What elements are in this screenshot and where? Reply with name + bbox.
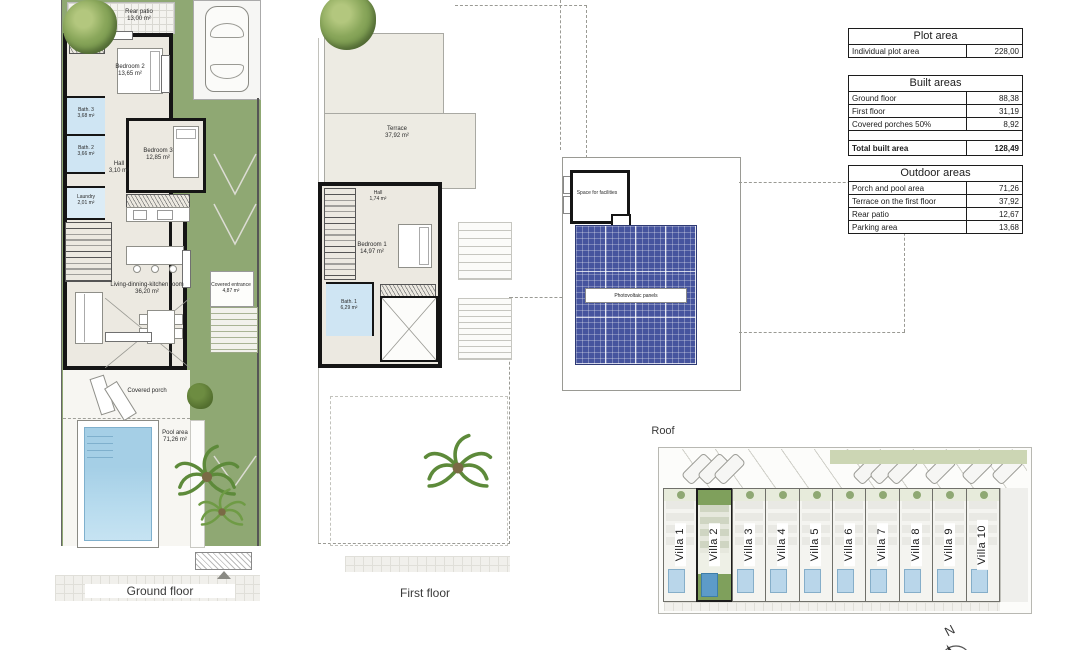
villa-label: Villa 3 — [744, 523, 755, 566]
stool-icon — [133, 265, 141, 273]
room-label-bedroom2: Bedroom 2 13,65 m² — [100, 62, 160, 80]
villa-plot-10: Villa 10 — [966, 488, 1000, 602]
access-path — [1000, 488, 1028, 602]
pool-water — [84, 427, 152, 541]
wardrobe-icon — [126, 194, 190, 208]
room-label-bath1: Bath. 1 6,29 m² — [326, 292, 372, 318]
table-row: Terrace on the first floor 37,92 — [849, 194, 1022, 207]
car-windshield — [210, 23, 244, 38]
window — [105, 332, 152, 342]
room-label-bath2: Bath. 2 3,66 m² — [67, 138, 105, 164]
site-plan: Villa 1 Villa 2 Villa 3 Vi — [655, 443, 1035, 650]
entry-arrow-icon — [217, 571, 231, 579]
outdoor-areas-table: Outdoor areas Porch and pool area 71,26 … — [848, 165, 1023, 234]
villa-plot-1: Villa 1 — [663, 488, 697, 602]
first-floor-plan: Terrace 37,92 m² Hall 1,74 m² Bedroom 1 … — [310, 0, 590, 612]
window — [161, 55, 170, 93]
villa-label: Villa 2 — [709, 523, 720, 566]
room-label-covered-porch: Covered porch — [117, 386, 177, 398]
kitchen-island — [126, 246, 184, 265]
chair-icon — [139, 314, 148, 325]
tree-icon — [980, 491, 988, 499]
setback-line — [739, 332, 905, 333]
car-icon — [205, 6, 249, 92]
void-skylight — [380, 296, 438, 362]
villa-plot-4: Villa 4 — [765, 488, 799, 602]
villa-pool — [837, 569, 854, 593]
villa-label: Villa 4 — [777, 523, 788, 566]
sidewalk — [345, 556, 510, 572]
villa-label: Villa 8 — [911, 523, 922, 566]
villa-pool — [770, 569, 787, 593]
plot-area-table: Plot area Individual plot area 228,00 — [848, 28, 1023, 58]
built-areas-table: Built areas Ground floor 88,38 First flo… — [848, 75, 1023, 156]
room-label-bedroom3: Bedroom 3 12,85 m² — [129, 146, 187, 164]
table-row: Covered porches 50% 8,92 — [849, 117, 1022, 130]
car-rear-window — [210, 64, 244, 79]
villa-plot-9: Villa 9 — [932, 488, 966, 602]
stool-icon — [169, 265, 177, 273]
table-row: Rear patio 12,67 — [849, 207, 1022, 220]
entry-mat — [195, 552, 252, 570]
table-title: Built areas — [849, 76, 1022, 92]
villa-pool — [904, 569, 921, 593]
room-label-laundry: Laundry 2,01 m² — [67, 188, 105, 212]
setback-line — [455, 5, 587, 6]
pergola-strip — [458, 222, 512, 280]
pool-steps — [87, 430, 113, 460]
villa-pool — [737, 569, 754, 593]
table-title: Outdoor areas — [849, 166, 1022, 182]
villa-label: Villa 6 — [844, 523, 855, 566]
floor-caption-ground: Ground floor — [85, 584, 235, 598]
villa-plot-7: Villa 7 — [865, 488, 899, 602]
bed-pillow — [176, 129, 196, 139]
kitchen-sink — [133, 210, 147, 220]
room-label-bath3: Bath. 3 3,68 m² — [67, 100, 105, 126]
villa-label: Villa 5 — [810, 523, 821, 566]
villa-pool — [937, 569, 954, 593]
room-label-bedroom1: Bedroom 1 14,97 m² — [340, 240, 404, 258]
sofa-icon — [75, 292, 103, 344]
villa-label: Villa 1 — [675, 523, 686, 566]
villa-label: Villa 10 — [977, 520, 988, 570]
label-photovoltaic: Photovoltaic panels — [585, 288, 687, 303]
chair-icon — [174, 328, 183, 339]
room-label-covered-entrance: Covered entrance 4,87 m² — [210, 273, 252, 303]
villa-plot-5: Villa 5 — [799, 488, 833, 602]
label-facilities: Space for facilities — [570, 178, 624, 208]
architectural-drawing-sheet: Rear patio 13,00 m² Bedroom 2 13,65 m² B… — [0, 0, 1070, 650]
setback-line — [560, 0, 561, 150]
villa-plot-3: Villa 3 — [732, 488, 766, 602]
villa-pool — [804, 569, 821, 593]
villa-pool — [870, 569, 887, 593]
table-row: Porch and pool area 71,26 — [849, 182, 1022, 194]
villa-garden — [698, 490, 730, 505]
tree-icon — [677, 491, 685, 499]
villa-pool — [668, 569, 685, 593]
tree-icon — [846, 491, 854, 499]
villa-pool — [971, 569, 988, 593]
area-tables: Plot area Individual plot area 228,00 Bu… — [848, 28, 1023, 238]
villa-pool — [701, 573, 718, 597]
floor-caption-first: First floor — [350, 586, 500, 600]
table-row: Ground floor 88,38 — [849, 92, 1022, 104]
tree-icon — [813, 491, 821, 499]
table-row: Individual plot area 228,00 — [849, 45, 1022, 57]
sofa-back — [77, 294, 85, 342]
villa-label: Villa 9 — [944, 523, 955, 566]
compass-icon — [933, 635, 979, 650]
driveway-chevron-icon — [212, 150, 258, 250]
exterior-steps — [458, 298, 512, 360]
chair-icon — [174, 314, 183, 325]
stool-icon — [151, 265, 159, 273]
green-verge — [830, 450, 1027, 464]
ground-floor-plan: Rear patio 13,00 m² Bedroom 2 13,65 m² B… — [55, 0, 265, 612]
room-label-terrace: Terrace 37,92 m² — [362, 122, 432, 144]
table-row: Parking area 13,68 — [849, 220, 1022, 233]
room-label-living: Living-dinning-kitchen room 36,20 m² — [97, 279, 197, 299]
bush-icon — [187, 383, 213, 409]
villa-row: Villa 1 Villa 2 Villa 3 Vi — [664, 488, 1000, 602]
floor-caption-roof: Roof — [628, 425, 698, 437]
bed-pillow — [419, 227, 429, 265]
sidewalk — [664, 602, 1000, 611]
table-title: Plot area — [849, 29, 1022, 45]
villa-plot-8: Villa 8 — [899, 488, 933, 602]
room-label-hall-ff: Hall 1,74 m² — [358, 188, 398, 204]
tree-icon — [913, 491, 921, 499]
villa-label: Villa 7 — [877, 523, 888, 566]
tree-icon — [746, 491, 754, 499]
kitchen-counter — [126, 207, 190, 222]
kitchen-hob — [157, 210, 173, 220]
staircase — [65, 222, 112, 282]
villa-plot-2-highlighted: Villa 2 — [696, 488, 732, 602]
staircase — [324, 188, 356, 280]
palm-tree-icon — [422, 432, 494, 504]
villa-plot-6: Villa 6 — [832, 488, 866, 602]
table-total-row: Total built area 128,49 — [849, 140, 1022, 155]
palm-tree-icon — [197, 487, 247, 537]
entrance-steps — [210, 307, 258, 353]
void-cross-lines — [382, 298, 436, 360]
table-row: First floor 31,19 — [849, 104, 1022, 117]
table-spacer-row — [849, 130, 1022, 140]
